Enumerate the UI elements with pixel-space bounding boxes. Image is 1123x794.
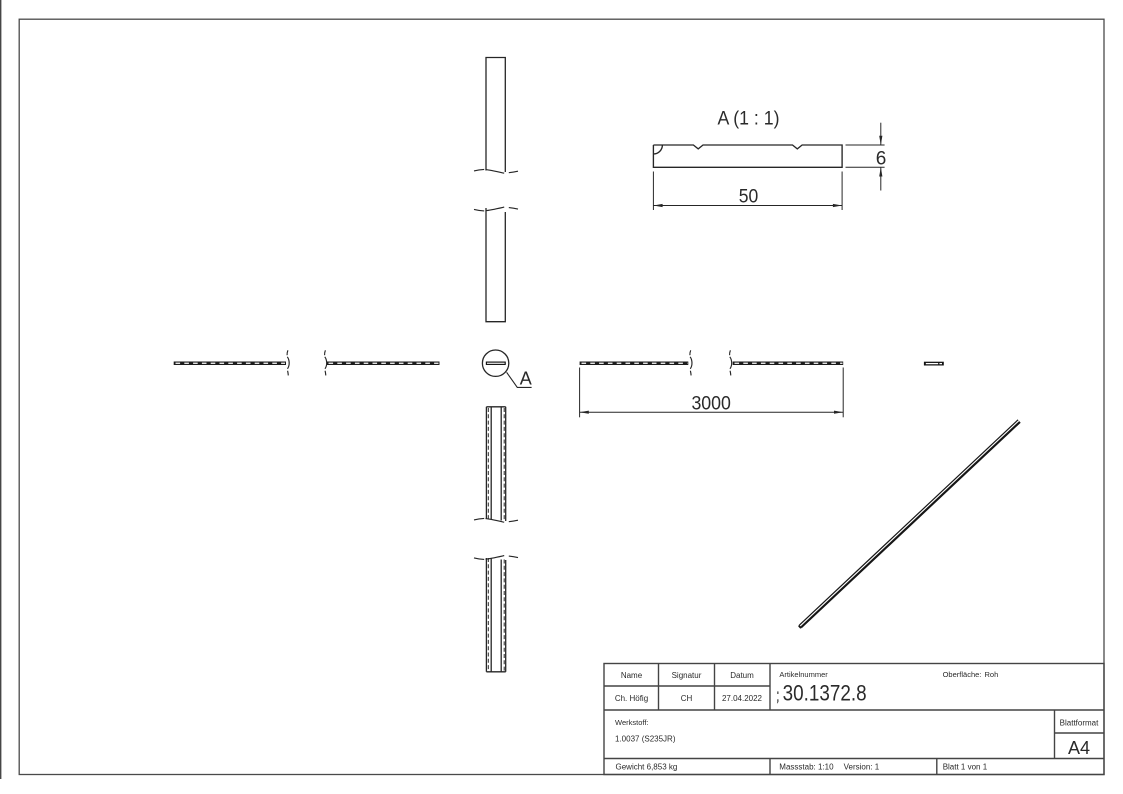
svg-text:A: A: [520, 369, 532, 389]
svg-text:30.1372.8: 30.1372.8: [783, 681, 867, 706]
svg-text:A4: A4: [1068, 738, 1090, 758]
svg-text:6: 6: [876, 148, 887, 169]
svg-text:Artikelnummer: Artikelnummer: [779, 670, 828, 679]
svg-text:Massstab: 1:10: Massstab: 1:10: [779, 763, 834, 772]
svg-text:Name: Name: [621, 671, 643, 680]
svg-text:Ch. Höfig: Ch. Höfig: [615, 694, 648, 703]
svg-text:50: 50: [739, 186, 759, 207]
svg-text:3000: 3000: [691, 393, 731, 414]
svg-text:Werkstoff:: Werkstoff:: [615, 718, 648, 727]
svg-text:Oberfläche:: Oberfläche:: [943, 670, 982, 679]
svg-text:CH: CH: [681, 694, 693, 703]
svg-text:Version: 1: Version: 1: [844, 763, 880, 772]
svg-text:A (1 : 1): A (1 : 1): [718, 108, 780, 130]
svg-text:Datum: Datum: [730, 671, 754, 680]
svg-text:Blattformat: Blattformat: [1060, 718, 1099, 727]
svg-text:Gewicht 6,853 kg: Gewicht 6,853 kg: [616, 763, 678, 772]
svg-text:1.0037 (S235JR): 1.0037 (S235JR): [615, 734, 676, 743]
svg-text:Signatur: Signatur: [672, 671, 702, 680]
svg-text:Blatt 1 von 1: Blatt 1 von 1: [943, 763, 988, 772]
svg-text:27.04.2022: 27.04.2022: [722, 694, 763, 703]
svg-text:Roh: Roh: [985, 670, 999, 679]
